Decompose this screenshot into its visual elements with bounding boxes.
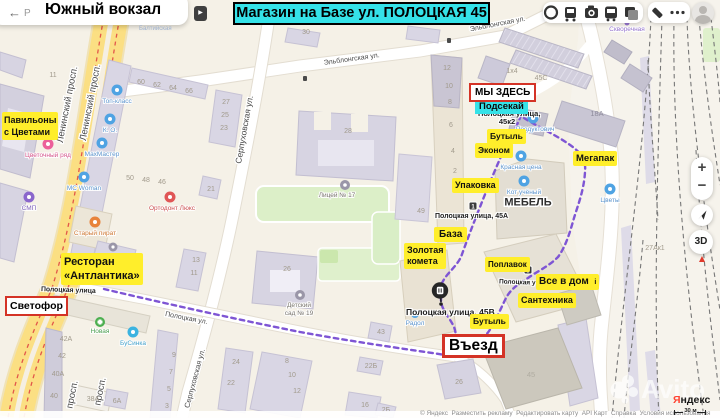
svg-text:Лицей № 17: Лицей № 17 [319, 191, 356, 199]
svg-text:27Ак1: 27Ак1 [645, 245, 665, 252]
svg-text:25: 25 [221, 112, 229, 119]
svg-text:1х4: 1х4 [506, 68, 517, 75]
svg-text:Радол: Радол [406, 320, 425, 327]
svg-text:4: 4 [451, 148, 455, 155]
svg-text:21: 21 [207, 186, 215, 193]
svg-text:Цветы: Цветы [600, 197, 620, 204]
svg-text:10: 10 [288, 372, 296, 379]
svg-text:16: 16 [361, 402, 369, 409]
svg-text:45: 45 [527, 370, 535, 379]
svg-text:22Б: 22Б [365, 363, 378, 370]
svg-text:13: 13 [192, 257, 200, 264]
svg-text:8: 8 [285, 358, 289, 365]
svg-text:64: 64 [169, 85, 177, 92]
svg-text:40: 40 [50, 393, 58, 400]
svg-text:Кот учёный: Кот учёный [507, 188, 542, 196]
svg-text:22: 22 [227, 380, 235, 387]
svg-text:сад № 19: сад № 19 [285, 310, 314, 317]
svg-text:49: 49 [417, 208, 425, 215]
svg-text:8: 8 [448, 99, 452, 106]
svg-text:38А: 38А [87, 396, 100, 403]
svg-text:Скворечная: Скворечная [609, 26, 645, 33]
svg-text:66: 66 [185, 88, 193, 95]
svg-text:18А: 18А [590, 109, 603, 118]
svg-text:42А: 42А [60, 336, 73, 343]
svg-text:26: 26 [455, 379, 463, 386]
svg-text:30: 30 [302, 29, 310, 36]
svg-text:23: 23 [220, 125, 228, 132]
svg-text:К. О.: К. О. [103, 127, 117, 134]
svg-text:5: 5 [167, 386, 171, 393]
svg-text:2: 2 [453, 168, 457, 175]
svg-text:Старый пират: Старый пират [74, 229, 116, 237]
svg-text:12: 12 [443, 65, 451, 72]
svg-text:БуСинка: БуСинка [120, 340, 146, 347]
svg-text:12: 12 [293, 388, 301, 395]
svg-text:9: 9 [172, 352, 176, 359]
svg-text:Новая: Новая [91, 328, 110, 335]
svg-text:СМП: СМП [22, 205, 37, 212]
svg-text:28: 28 [344, 128, 352, 135]
svg-text:6А: 6А [113, 398, 122, 405]
svg-text:7: 7 [169, 369, 173, 376]
svg-text:43: 43 [377, 329, 385, 336]
svg-text:МахМастер: МахМастер [85, 151, 120, 158]
svg-text:11: 11 [190, 270, 197, 277]
svg-text:11: 11 [49, 72, 56, 79]
svg-text:3: 3 [165, 403, 169, 410]
svg-text:Ортодонт Люкс: Ортодонт Люкс [149, 205, 196, 212]
svg-text:MC Woman: MC Woman [67, 185, 102, 192]
svg-text:48: 48 [142, 177, 150, 184]
svg-text:Красная цена: Красная цена [500, 164, 542, 171]
svg-text:42: 42 [58, 353, 66, 360]
svg-text:Топ-класс: Топ-класс [102, 98, 132, 105]
svg-text:45С: 45С [535, 75, 548, 82]
svg-text:60: 60 [137, 79, 145, 86]
svg-text:26: 26 [283, 266, 291, 273]
svg-text:МЕБЕЛЬ: МЕБЕЛЬ [504, 197, 551, 209]
svg-text:40А: 40А [52, 371, 65, 378]
svg-text:50: 50 [126, 175, 134, 182]
svg-text:46: 46 [158, 179, 166, 186]
svg-text:24: 24 [232, 359, 240, 366]
svg-text:6: 6 [449, 122, 453, 129]
svg-text:27: 27 [222, 99, 230, 106]
svg-text:10: 10 [445, 83, 453, 90]
svg-text:62: 62 [153, 82, 161, 89]
svg-text:Цветочный ряд: Цветочный ряд [25, 151, 71, 159]
svg-text:Детский: Детский [287, 301, 311, 309]
